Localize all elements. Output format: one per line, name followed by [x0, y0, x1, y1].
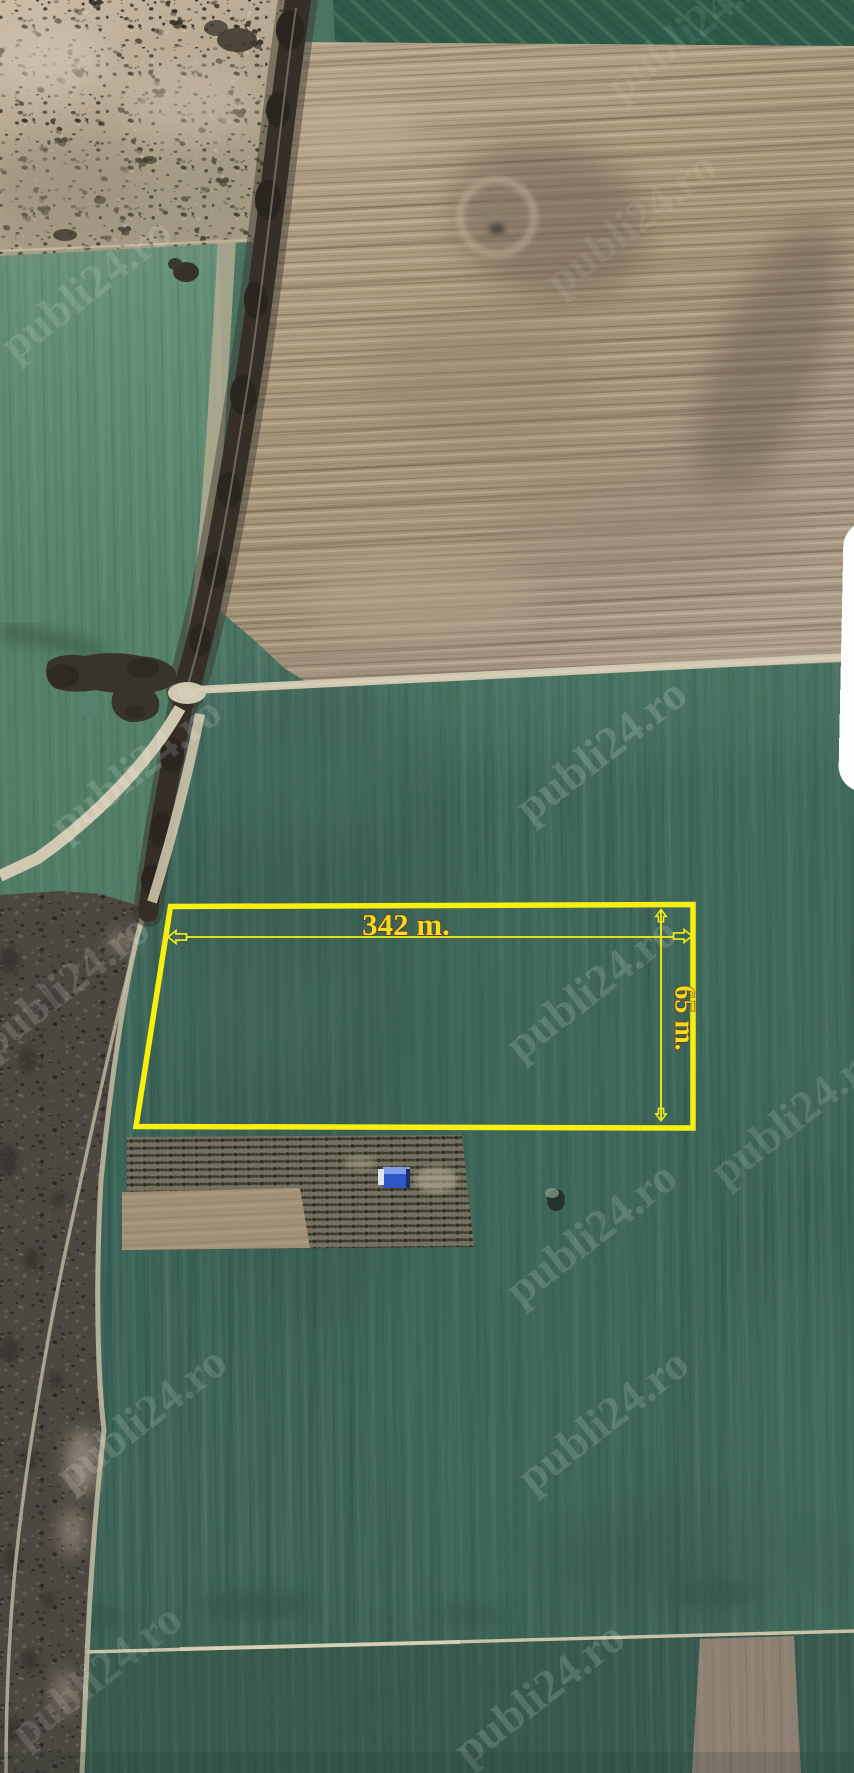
svg-text:342 m.: 342 m.	[362, 907, 450, 942]
svg-text:65 m.: 65 m.	[669, 985, 700, 1050]
